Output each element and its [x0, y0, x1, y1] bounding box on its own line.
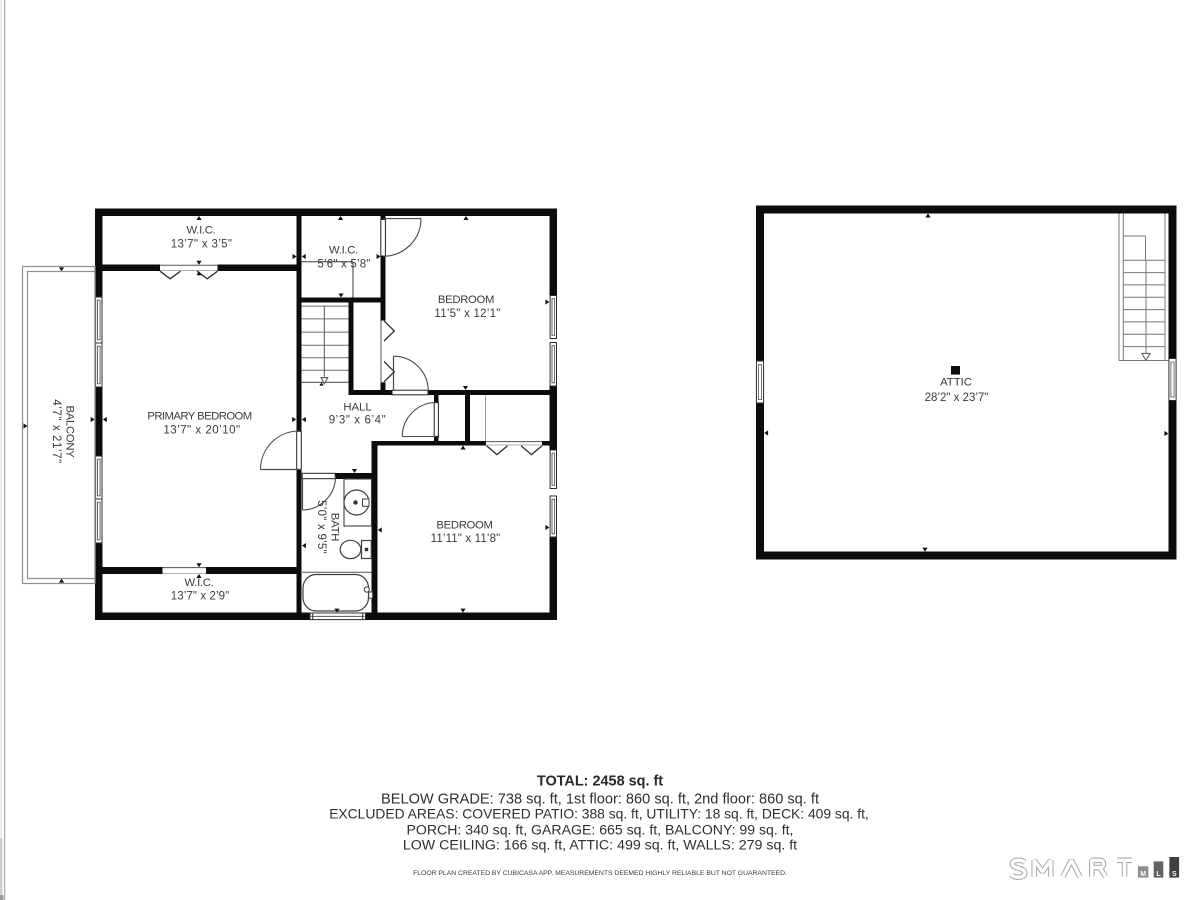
svg-text:5’0" x 9’5": 5’0" x 9’5" [315, 500, 327, 554]
svg-text:13’7" x 2’9": 13’7" x 2’9" [171, 591, 230, 603]
svg-text:PRIMARY BEDROOM: PRIMARY BEDROOM [147, 411, 251, 423]
svg-text:LOW CEILING: 166 sq. ft, ATTIC: LOW CEILING: 166 sq. ft, ATTIC: 499 sq. … [403, 838, 797, 854]
svg-text:13’7" x 3’5": 13’7" x 3’5" [171, 239, 233, 251]
svg-text:W.I.C.: W.I.C. [185, 577, 214, 589]
svg-text:13’7" x 20’10": 13’7" x 20’10" [163, 425, 240, 437]
svg-text:BEDROOM: BEDROOM [438, 294, 494, 306]
svg-text:W.I.C.: W.I.C. [329, 245, 358, 257]
svg-text:4’7" x 21’7": 4’7" x 21’7" [50, 399, 62, 464]
svg-text:ATTIC: ATTIC [940, 377, 972, 389]
svg-text:BATH: BATH [329, 513, 341, 542]
svg-text:BEDROOM: BEDROOM [436, 520, 492, 532]
svg-text:28’2" x 23’7": 28’2" x 23’7" [925, 392, 989, 404]
svg-text:W.I.C.: W.I.C. [187, 225, 216, 237]
svg-text:TOTAL: 2458 sq. ft: TOTAL: 2458 sq. ft [537, 774, 663, 790]
svg-text:HALL: HALL [343, 402, 371, 414]
svg-text:5’6" x 5’8": 5’6" x 5’8" [317, 259, 370, 271]
svg-text:EXCLUDED AREAS: COVERED PATIO:: EXCLUDED AREAS: COVERED PATIO: 388 sq. f… [329, 806, 869, 822]
svg-text:11’11" x 11’8": 11’11" x 11’8" [431, 533, 501, 545]
svg-text:M: M [1140, 871, 1146, 878]
svg-text:11’5" x 12’1": 11’5" x 12’1" [434, 308, 500, 320]
svg-text:L: L [1156, 871, 1161, 878]
svg-text:9’3" x 6’4": 9’3" x 6’4" [329, 415, 387, 427]
svg-text:FLOOR PLAN CREATED BY CUBICASA: FLOOR PLAN CREATED BY CUBICASA APP. MEAS… [413, 870, 787, 877]
svg-text:PORCH: 340 sq. ft, GARAGE: 665: PORCH: 340 sq. ft, GARAGE: 665 sq. ft, B… [407, 822, 794, 838]
svg-text:BALCONY: BALCONY [64, 406, 76, 459]
svg-text:S: S [1172, 871, 1177, 878]
